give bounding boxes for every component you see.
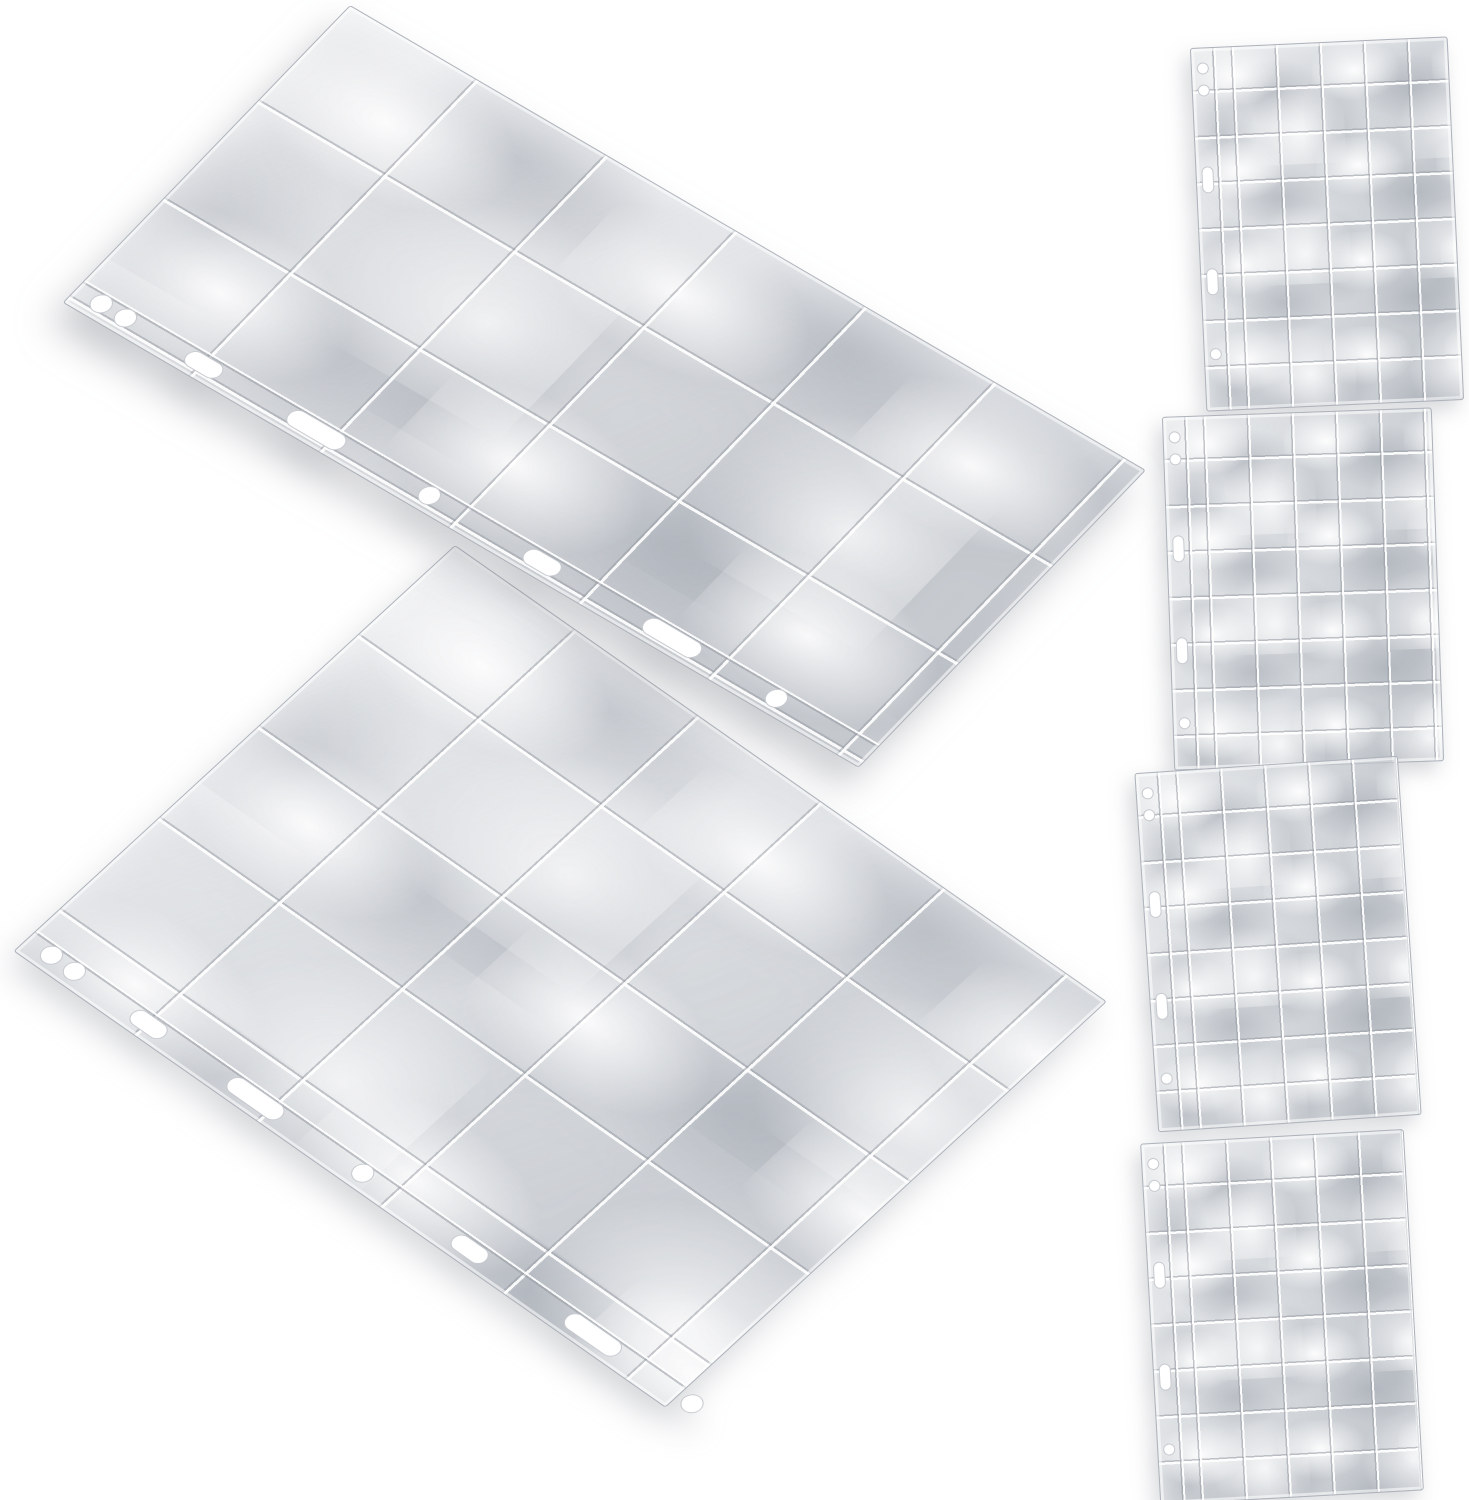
binder-hole xyxy=(1153,1261,1166,1289)
binder-hole xyxy=(1160,1072,1173,1085)
binder-hole xyxy=(1210,348,1223,361)
binder-hole xyxy=(180,348,228,382)
binder-hole xyxy=(1148,1180,1161,1193)
binder-hole xyxy=(1141,787,1154,800)
binder-hole xyxy=(1206,268,1219,296)
binder-hole xyxy=(1147,1158,1160,1171)
binder-hole xyxy=(109,305,142,331)
large-pocket-page-1 xyxy=(63,5,1146,768)
binder-hole xyxy=(559,1310,626,1361)
binder-hole xyxy=(1178,717,1190,729)
binder-hole xyxy=(1148,891,1162,919)
binder-hole xyxy=(282,407,352,454)
binder-hole xyxy=(1172,535,1185,562)
small-pocket-pages-shadow-wrap xyxy=(0,0,1469,1500)
product-photo xyxy=(0,0,1469,1500)
small-pocket-page-2 xyxy=(1162,407,1444,770)
binder-hole xyxy=(637,614,707,661)
small-pocket-page-4 xyxy=(1140,1129,1424,1500)
binder-hole xyxy=(85,291,118,317)
large-pocket-page-1-shadow-wrap xyxy=(0,0,1469,1500)
binder-hole xyxy=(1201,166,1214,194)
binder-hole xyxy=(413,482,446,508)
binder-hole xyxy=(222,1073,289,1124)
binder-hole xyxy=(1198,84,1211,97)
binder-hole xyxy=(125,1006,172,1042)
binder-hole xyxy=(1169,453,1181,465)
small-pocket-page-1 xyxy=(1190,36,1464,411)
binder-hole xyxy=(1143,809,1156,822)
large-pocket-page-2-shadow-wrap xyxy=(0,0,1469,1500)
binder-hole xyxy=(676,1390,709,1417)
binder-hole xyxy=(58,958,91,985)
binder-hole xyxy=(1176,637,1189,664)
binder-hole xyxy=(446,1231,493,1267)
binder-hole xyxy=(346,1160,379,1187)
binder-hole xyxy=(760,685,793,711)
large-pocket-page-2 xyxy=(13,545,1107,1408)
binder-hole xyxy=(1197,62,1210,75)
binder-hole xyxy=(1168,431,1180,443)
binder-hole xyxy=(518,546,566,580)
binder-hole xyxy=(1163,1443,1176,1456)
binder-hole xyxy=(35,942,68,969)
binder-hole xyxy=(1158,1363,1171,1391)
small-pocket-page-3 xyxy=(1134,756,1421,1133)
binder-hole xyxy=(1155,992,1169,1020)
